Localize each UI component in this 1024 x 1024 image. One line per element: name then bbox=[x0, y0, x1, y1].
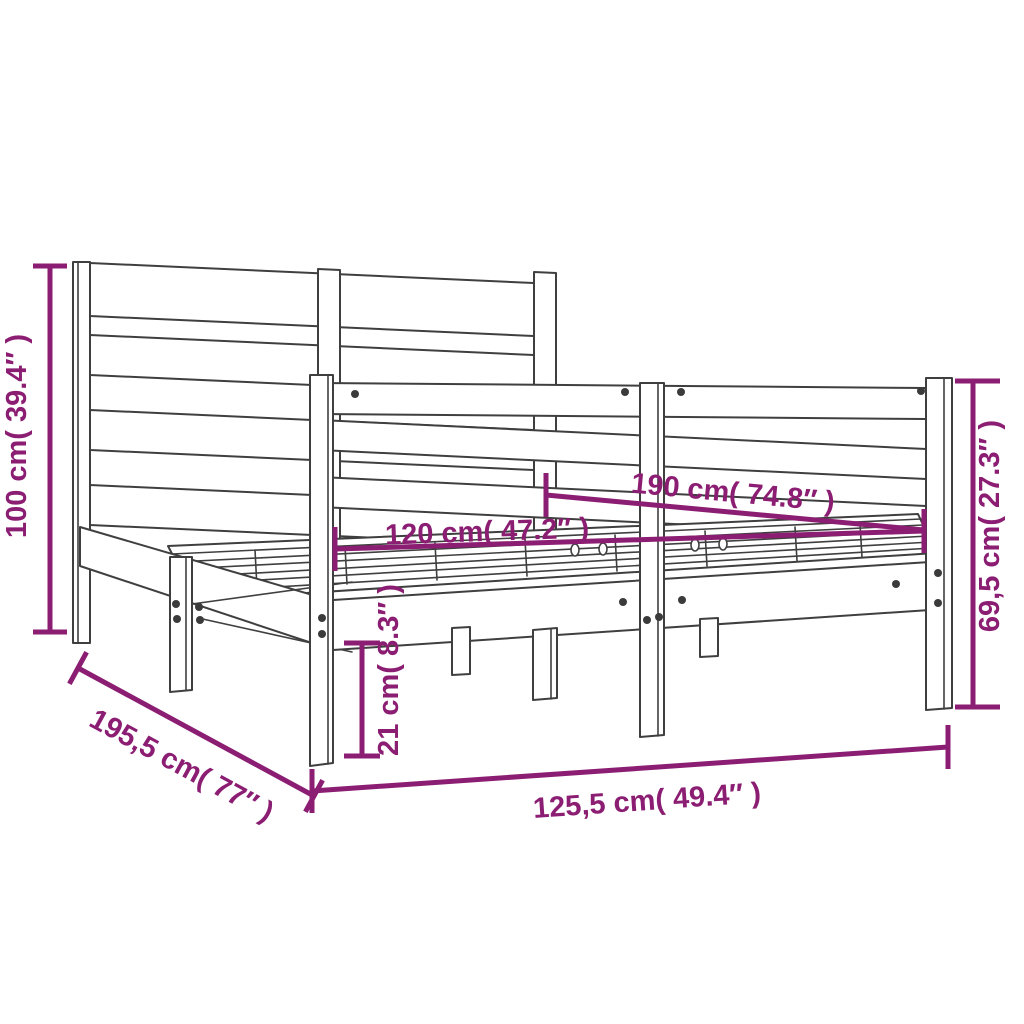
corner-post-front-left bbox=[310, 375, 333, 766]
screw bbox=[621, 388, 629, 396]
dim-side-height: 69,5 cm( 27.3″ ) bbox=[955, 381, 1006, 707]
screw bbox=[677, 388, 685, 396]
screw bbox=[173, 615, 181, 623]
dim-side-height-label: 69,5 cm( 27.3″ ) bbox=[974, 420, 1006, 632]
slat-holder-tab bbox=[719, 538, 727, 550]
dim-total-width-line bbox=[312, 747, 948, 791]
screw bbox=[172, 600, 180, 608]
post-middle bbox=[640, 383, 664, 737]
leg-back-left bbox=[170, 557, 192, 692]
diagram-canvas: 100 cm( 39.4″ ) 195,5 cm( 77″ ) 125,5 cm… bbox=[0, 0, 1024, 1024]
screw bbox=[643, 616, 651, 624]
screw bbox=[195, 603, 203, 611]
screw bbox=[619, 598, 627, 606]
dim-headboard-height: 100 cm( 39.4″ ) bbox=[1, 266, 67, 632]
dim-total-width: 125,5 cm( 49.4″ ) bbox=[312, 725, 948, 825]
dim-total-length-tick-start bbox=[69, 652, 86, 684]
screw bbox=[892, 580, 900, 588]
screw bbox=[917, 387, 925, 395]
dim-ground-clearance-label: 21 cm( 8.3″ ) bbox=[373, 584, 405, 756]
screw bbox=[678, 596, 686, 604]
leg-far-2 bbox=[700, 618, 718, 657]
screw bbox=[318, 614, 326, 622]
bed-frame-dimension-diagram: 100 cm( 39.4″ ) 195,5 cm( 77″ ) 125,5 cm… bbox=[0, 0, 1024, 1024]
dim-total-width-label: 125,5 cm( 49.4″ ) bbox=[532, 777, 762, 825]
slat-holder-tab bbox=[691, 539, 699, 551]
screw bbox=[351, 390, 359, 398]
screw bbox=[318, 630, 326, 638]
screw bbox=[196, 616, 204, 624]
dim-headboard-height-label: 100 cm( 39.4″ ) bbox=[1, 334, 33, 538]
screw bbox=[655, 613, 663, 621]
side-rail-board-2 bbox=[320, 420, 926, 479]
screw bbox=[934, 599, 942, 607]
dim-total-length: 195,5 cm( 77″ ) bbox=[69, 652, 322, 828]
slat-holder-tab bbox=[571, 544, 579, 556]
headboard-post-left bbox=[73, 262, 90, 643]
side-rail-board-top bbox=[320, 383, 926, 419]
leg-far-1 bbox=[452, 627, 470, 675]
leg-near-1 bbox=[533, 628, 557, 700]
screw bbox=[934, 569, 942, 577]
post-right bbox=[926, 378, 952, 710]
slat-holder-tab bbox=[599, 543, 607, 555]
